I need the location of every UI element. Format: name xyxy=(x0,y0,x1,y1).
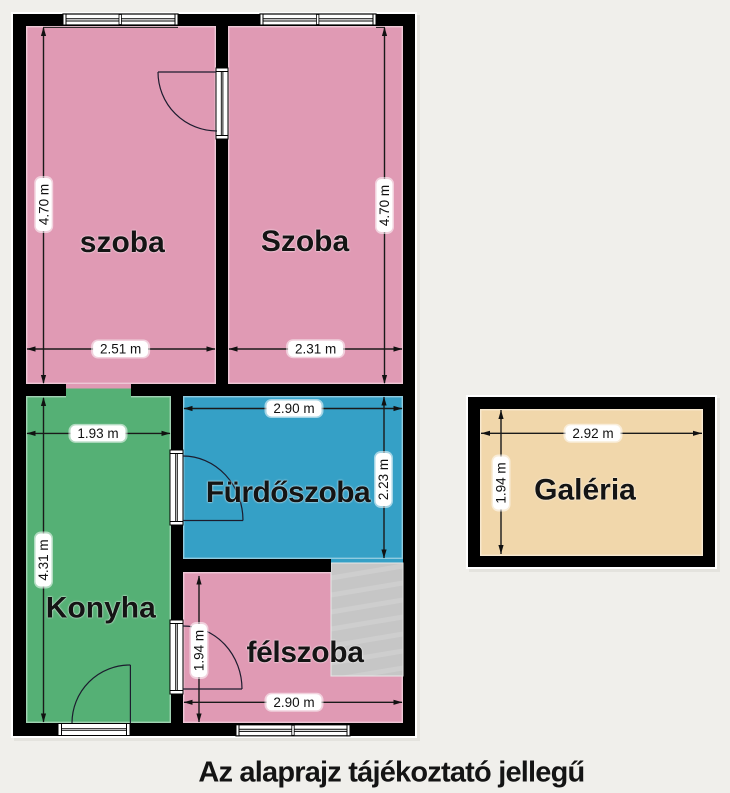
svg-text:1.94 m: 1.94 m xyxy=(494,462,509,503)
svg-text:1.93 m: 1.93 m xyxy=(77,426,118,441)
svg-text:4.70 m: 4.70 m xyxy=(36,184,51,225)
svg-text:Az alaprajz tájékoztató jelleg: Az alaprajz tájékoztató jellegű xyxy=(198,757,584,789)
svg-text:2.90 m: 2.90 m xyxy=(273,695,314,710)
svg-text:2.31 m: 2.31 m xyxy=(295,341,336,356)
svg-text:Fürdőszoba: Fürdőszoba xyxy=(206,476,371,509)
svg-text:2.92 m: 2.92 m xyxy=(572,426,613,441)
svg-text:2.90 m: 2.90 m xyxy=(273,401,314,416)
svg-text:félszoba: félszoba xyxy=(246,636,364,669)
svg-text:4.31 m: 4.31 m xyxy=(36,539,51,580)
svg-text:Konyha: Konyha xyxy=(46,592,156,625)
svg-text:Szoba: Szoba xyxy=(261,225,350,258)
svg-text:szoba: szoba xyxy=(80,226,165,259)
svg-text:4.70 m: 4.70 m xyxy=(377,185,392,226)
svg-text:Galéria: Galéria xyxy=(534,474,636,507)
svg-text:1.94 m: 1.94 m xyxy=(192,630,207,671)
svg-text:2.51 m: 2.51 m xyxy=(100,342,141,357)
svg-text:2.23 m: 2.23 m xyxy=(376,459,391,500)
